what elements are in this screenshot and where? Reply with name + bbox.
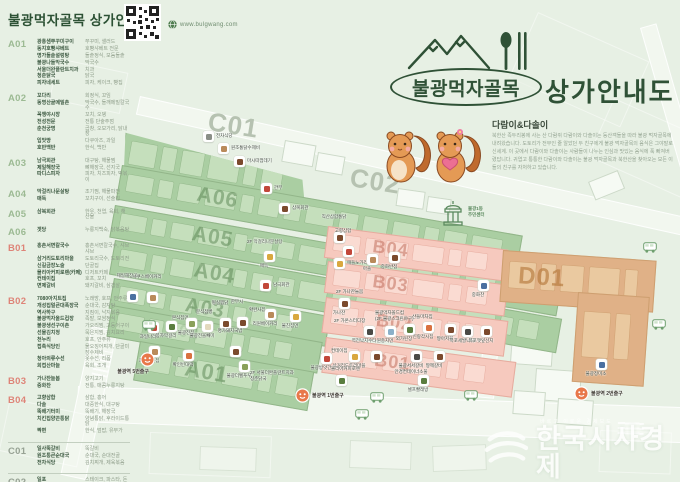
- building: [624, 270, 638, 297]
- community-center-label: 주민센터: [468, 212, 485, 218]
- store-name: 매득: [37, 197, 83, 203]
- store-glyph: [150, 295, 156, 301]
- store-entry: 원조통큰순대국순대국, 순대전골: [37, 454, 130, 460]
- store-entry: 접촉식당인물오징어찌개, 단골미장수제비: [37, 345, 130, 356]
- poi-label: 직산삼합통닭: [322, 214, 347, 220]
- store-entry: 면제갈비돼지갈비, 삼겹살: [37, 284, 130, 290]
- store-description: 막국수, 들깨메밀칼국수: [85, 101, 130, 112]
- building: [128, 141, 158, 168]
- section-entries: 가나잔늘봄양지고기중화찬전통, 매콤누룽지탕: [37, 377, 130, 389]
- poi-label: 불광정미소: [586, 371, 607, 377]
- store-name: 회접산마늘: [37, 364, 83, 370]
- directory-section-C02: C02일포스테이크, 파스타, 돈가스: [8, 473, 130, 482]
- section-entries: 겟당누룽지백숙, 닭볶음탕: [37, 228, 130, 238]
- store-entry: 고향삼합삼합, 홍어: [37, 396, 130, 402]
- store-entry: 삼거리도토리마을도토리국수, 도토리전: [37, 257, 130, 263]
- store-description: 막국수: [85, 61, 130, 67]
- store-name: 원조통큰순대국: [37, 454, 83, 460]
- building: [199, 446, 257, 472]
- store-icon: [418, 375, 429, 386]
- building: [179, 150, 205, 176]
- store-name: 홍촌서면칼국수: [37, 244, 83, 255]
- store-name: 뚝배기터미: [37, 410, 83, 416]
- zone-label-A05: A05: [190, 223, 235, 251]
- poi-label: 매득: [260, 263, 268, 269]
- poi-label: 마시따껍데기: [247, 158, 272, 164]
- store-entry: 일사뚝갈비뚝갈비: [37, 447, 130, 453]
- building: [516, 319, 539, 339]
- store-name: 가나잔늘봄: [37, 377, 83, 383]
- store-name: 호반백반: [37, 146, 83, 152]
- store-icon: [462, 326, 473, 337]
- store-glyph: [130, 294, 136, 300]
- store-glyph: [407, 327, 413, 333]
- store-glyph: [342, 301, 348, 307]
- poi-label: 뭥실찜닭: [212, 300, 229, 306]
- store-entry: 입맛땅다쿠아즈, 과일: [37, 139, 130, 145]
- poi-label: 2F 막걸리나문살탕: [247, 239, 282, 245]
- directory-section-A06: A06겟당누룽지백숙, 닭볶음탕: [8, 228, 130, 238]
- store-entry: 중화찬전통, 매콤누룽지탕: [37, 384, 130, 390]
- section-id: A01: [8, 40, 33, 87]
- store-description: 전통, 매콤누룽지탕: [85, 384, 130, 390]
- poi-label: 몰리아커피로렌: [331, 366, 360, 372]
- poi-label: 산들마차집: [412, 314, 433, 320]
- directory-section-B01: B01홍촌서면칼국수홍촌서면칼국수, 샤브샤브삼거리도토리마을도토리국수, 도토…: [8, 244, 130, 289]
- store-name: 겟당: [37, 228, 83, 234]
- section-entries: 광흥샘쭈꾸미구이쭈꾸미, 샐러드동지호빵샤베트호빵샤베트 전문명가돌솥설렁탕돌솥…: [37, 40, 130, 87]
- subway-exit-icon: [295, 388, 310, 403]
- store-glyph: [223, 321, 229, 327]
- store-entry: 매득꼬치구이, 선술집: [37, 197, 130, 203]
- bus-icon: [652, 317, 666, 335]
- store-name: 동명산골메밀촌: [37, 101, 83, 112]
- store-entry: 동명산골메밀촌막국수, 들깨메밀칼국수: [37, 101, 130, 112]
- poi-label: 불광역 1번출구: [312, 392, 344, 399]
- store-name: 삼복회관: [37, 210, 83, 221]
- store-glyph: [484, 329, 490, 335]
- section-entries: 일포스테이크, 파스타, 돈가스: [37, 478, 130, 482]
- poi-label: 컨테이집: [331, 348, 348, 354]
- globe-icon: [168, 16, 177, 34]
- subway-exit: 불광역 2번출구: [574, 386, 589, 406]
- store-icon: [321, 353, 332, 364]
- zone-D01: [572, 292, 650, 387]
- subway-exit: 불광역 5번출구: [140, 352, 155, 372]
- poi-label: 2F 가나잔늘봄: [336, 289, 363, 295]
- store-description: 꼬치, 오뎅: [85, 113, 130, 119]
- store-icon: [234, 156, 245, 167]
- store-icon: [445, 324, 456, 335]
- building: [412, 279, 444, 298]
- store-glyph: [205, 324, 211, 330]
- building: [233, 234, 248, 252]
- section-entries: 삼복회관한우, 천엽, 육회, 해산물: [37, 210, 130, 221]
- store-name: 일사뚝갈비: [37, 447, 83, 453]
- store-icon: [434, 351, 445, 362]
- poi-label: 아솔: [363, 266, 371, 272]
- store-icon: [218, 143, 229, 154]
- store-description: 전통 단술주점: [85, 120, 130, 126]
- poi-label: 중화찬: [472, 292, 484, 298]
- building: [150, 219, 167, 237]
- store-description: 호빵샤베트 전문: [85, 47, 130, 53]
- store-icon: [596, 359, 607, 370]
- poi-label: 불광더벨푸우: [227, 373, 252, 379]
- store-glyph: [367, 329, 373, 335]
- building: [432, 444, 487, 472]
- store-glyph: [599, 362, 605, 368]
- poi-label: 가나잔: [333, 310, 345, 316]
- store-entry: 겟당누룽지백숙, 닭볶음탕: [37, 228, 130, 234]
- building: [240, 194, 255, 213]
- poi-label: 사쿠스베이커리: [133, 274, 162, 280]
- store-entry: 명가돌솥설렁탕돌솥정식, 모둠돌솥: [37, 54, 130, 60]
- section-entries: 막걸리나문살탕조기찜, 해물파전매득꼬치구이, 선술집: [37, 190, 130, 202]
- poster-title: 불광먹자골목 상가안내: [8, 9, 141, 29]
- building: [333, 269, 361, 288]
- section-id: C01: [8, 447, 33, 466]
- store-name: 남극회관: [37, 159, 83, 165]
- section-id: B03: [8, 377, 33, 389]
- store-description: 돌솥정식, 모둠돌솥: [85, 54, 130, 60]
- poi-label: 삼복회관: [292, 205, 309, 211]
- poi-label: 리원베이커리: [253, 321, 278, 327]
- store-icon: [343, 246, 354, 257]
- store-glyph: [206, 134, 212, 140]
- store-glyph: [392, 255, 398, 261]
- building: [588, 170, 625, 201]
- store-name: 면제갈비: [37, 284, 83, 290]
- store-entry: 치킨집양끈통닭양념통닭, 후라이드통닭: [37, 417, 130, 428]
- building: [512, 390, 546, 416]
- store-description: 곱창, 오모가리, 닭내장: [85, 127, 130, 138]
- store-icon: [290, 311, 301, 322]
- watermark: 바르고 이로운 경제보도 한국시사경제: [482, 418, 680, 482]
- section-id: B01: [8, 244, 33, 289]
- store-name: 피자네세트: [37, 81, 83, 87]
- store-glyph: [388, 329, 394, 335]
- store-description: 한우, 천엽, 육회, 해산물: [85, 210, 130, 221]
- store-icon: [203, 131, 214, 142]
- store-name: 천누리: [37, 338, 83, 344]
- squirrel-mascots-icon: [384, 126, 484, 193]
- store-entry: 일포스테이크, 파스타, 돈가스: [37, 478, 130, 482]
- store-name: 선물김치정: [37, 331, 83, 337]
- store-name: 고향삼합: [37, 396, 83, 402]
- store-entry: 회접산마늘육회, 조개: [37, 364, 130, 370]
- section-id: B04: [8, 396, 33, 435]
- store-name: 신길금장노술: [37, 264, 83, 270]
- poi-label: 외가된장: [396, 336, 413, 342]
- building: [448, 249, 462, 266]
- store-glyph: [374, 354, 380, 360]
- building: [258, 197, 281, 217]
- store-description: 단골집: [85, 264, 130, 270]
- building: [274, 341, 292, 359]
- poi-label: 분식점빵: [196, 309, 213, 315]
- store-description: 쭈꾸미, 샐러드: [85, 40, 130, 46]
- store-glyph: [339, 378, 345, 384]
- store-name: 입맛땅: [37, 139, 83, 145]
- store-description: 삼합, 홍어: [85, 396, 130, 402]
- store-glyph: [337, 261, 343, 267]
- bus-icon: [464, 388, 478, 406]
- store-description: 누룽지백숙, 닭볶음탕: [85, 228, 130, 234]
- store-entry: 다솔대중한식, 대구탕: [37, 403, 130, 409]
- poi-label: 목포깻잎선지: [469, 338, 494, 344]
- store-entry: 천누리호프, 안주류: [37, 338, 130, 344]
- subway-exit: 불광역 1번출구: [295, 388, 310, 408]
- section-entries: 홍촌서면칼국수홍촌서면칼국수, 샤브샤브삼거리도토리마을도토리국수, 도토리전신…: [37, 244, 130, 289]
- section-id: B02: [8, 297, 33, 370]
- store-entry: 춘천궁명곱창, 오모가리, 닭내장: [37, 127, 130, 138]
- store-glyph: [233, 349, 239, 355]
- directory-section-A03: A03남극회관대구탕, 해물찜제일해장국뼈해장국, 선지국따디스피자피자, 치즈…: [8, 159, 130, 184]
- store-icon: [237, 317, 248, 328]
- store-entry: 뚝배기터미뚝배기, 해장국: [37, 410, 130, 416]
- mascot-description: 북한산 족두리봉에 사는 산 다람쥐 다람이와 다솔이는 등산객들을 따라 불광…: [492, 132, 674, 172]
- store-icon: [230, 346, 241, 357]
- store-entry: 선물김치정묵은지찜, 김치요리: [37, 331, 130, 337]
- store-icon: [261, 183, 272, 194]
- store-description: 다쿠아즈, 과일: [85, 139, 130, 145]
- store-description: 노래방, 호프, 안주류: [85, 297, 130, 303]
- poi-label: 불광서서갈비안경컨테이너소울: [394, 363, 427, 374]
- building: [446, 361, 460, 380]
- store-glyph: [346, 249, 352, 255]
- directory-section-B03: B03가나잔늘봄양지고기중화찬전통, 매콤누룽지탕: [8, 377, 130, 389]
- store-glyph: [370, 257, 376, 263]
- section-id: A06: [8, 228, 33, 238]
- store-icon: [389, 252, 400, 263]
- store-icon: [186, 318, 197, 329]
- store-name: 치킨집양끈통닭: [37, 417, 83, 428]
- store-description: 대구탕, 해물찜: [85, 159, 130, 165]
- store-description: 호프, 안주류: [85, 338, 130, 344]
- store-description: 순대국, 순대전골: [85, 454, 130, 460]
- store-entry: 가나잔늘봄양지고기: [37, 377, 130, 383]
- poi-label: 깐부: [274, 185, 282, 191]
- store-description: 육회, 조개: [85, 364, 130, 370]
- store-description: 뚝배기, 해장국: [85, 410, 130, 416]
- store-glyph: [421, 378, 427, 384]
- store-glyph: [282, 206, 288, 212]
- store-description: 홍촌서면칼국수, 샤브샤브: [85, 244, 130, 255]
- building: [613, 313, 630, 360]
- section-id: A04: [8, 190, 33, 202]
- store-glyph: [465, 329, 471, 335]
- store-description: 양지고기: [85, 377, 130, 383]
- store-name: 춘천궁명: [37, 127, 83, 138]
- store-entry: 전성전문전통 단술주점: [37, 120, 130, 126]
- store-glyph: [481, 283, 487, 289]
- store-description: 묵은지찜, 김치요리: [85, 331, 130, 337]
- store-entry: 호반백반한식, 백반: [37, 146, 130, 152]
- website-link[interactable]: www.bulgwang.com: [180, 22, 238, 28]
- store-name: 짝편: [37, 429, 83, 435]
- poi-label: 불광전올빼미: [190, 333, 215, 339]
- store-entry: 삼복회관한우, 천엽, 육회, 해산물: [37, 210, 130, 221]
- poi-label: 2F 가온스터디장: [334, 318, 365, 324]
- store-glyph: [263, 283, 269, 289]
- zone-label-A04: A04: [192, 259, 237, 287]
- store-description: 꼬치구이, 선술집: [85, 197, 130, 203]
- store-name: 광흥샘쭈꾸미구이: [37, 40, 83, 46]
- store-icon: [385, 326, 396, 337]
- directory-section-B04: B04고향삼합삼합, 홍어다솔대중한식, 대구탕뚝배기터미뚝배기, 해장국치킨집…: [8, 396, 130, 435]
- building: [281, 140, 316, 167]
- store-icon: [260, 280, 271, 291]
- store-glyph: [267, 254, 273, 260]
- building: [581, 311, 610, 358]
- watermark-name: 한국시사경제: [536, 425, 680, 482]
- poi-label: 짱께갈비: [426, 363, 443, 369]
- section-id: A05: [8, 210, 33, 221]
- bus-icon: [370, 390, 384, 408]
- building: [170, 258, 195, 279]
- store-name: 전성전문: [37, 120, 83, 126]
- store-icon: [239, 361, 250, 372]
- store-glyph: [437, 354, 443, 360]
- poi-label: 고향삼합: [335, 228, 352, 234]
- store-name: 7080아지트집: [37, 297, 83, 303]
- section-id: A02: [8, 94, 33, 152]
- building: [463, 363, 485, 383]
- store-icon: [423, 322, 434, 333]
- store-icon: [339, 298, 350, 309]
- store-entry: 개성집얼큰대폭장국순대국, 감자탕: [37, 304, 130, 310]
- store-glyph: [426, 325, 432, 331]
- store-icon: [202, 321, 213, 332]
- store-glyph: [242, 364, 248, 370]
- store-name: 불광나들막국수: [37, 61, 83, 67]
- directory-section-B02: B027080아지트집노래방, 호프, 안주류개성집얼큰대폭장국순대국, 감자탕…: [8, 297, 130, 370]
- directory-section-A05: A05삼복회관한우, 천엽, 육회, 해산물: [8, 210, 130, 221]
- store-entry: 불광나들막국수막국수: [37, 61, 130, 67]
- store-name: 중화찬: [37, 384, 83, 390]
- building: [157, 179, 174, 198]
- store-glyph: [324, 356, 330, 362]
- store-icon: [349, 351, 360, 362]
- poi-label: 전차식당: [216, 133, 233, 139]
- poster: A06A05A04A03A02A01B04B03B02B01D01C01C02전…: [0, 0, 680, 482]
- store-name: 일포: [37, 478, 83, 482]
- store-description: 피자, 케이크, 빵집: [85, 81, 130, 87]
- store-entry: 짝편한식, 덮밥, 유부가: [37, 429, 130, 435]
- building: [588, 267, 620, 295]
- logo-wordmark-frame: 불광먹자골목: [390, 68, 542, 106]
- store-icon: [336, 375, 347, 386]
- bus-icon: [643, 240, 657, 258]
- directory-section-A01: A01광흥샘쭈꾸미구이쭈꾸미, 샐러드동지호빵샤베트호빵샤베트 전문명가돌솥설렁…: [8, 40, 130, 87]
- bus-icon: [355, 407, 369, 425]
- store-entry: 따디스피자피자, 치즈피자, 떡볶이: [37, 172, 130, 183]
- store-icon: [371, 351, 382, 362]
- poi-label: 뭔충지먼: [377, 338, 394, 344]
- subway-exit-icon: [574, 386, 589, 401]
- store-entry: 전차식당김치찌개, 제육볶음: [37, 461, 130, 467]
- store-icon: [478, 280, 489, 291]
- building: [248, 337, 270, 356]
- store-icon: [279, 203, 290, 214]
- poi-label: 불친집먼: [282, 323, 299, 329]
- store-icon: [264, 251, 275, 262]
- poi-label: 신랑각시집: [413, 334, 434, 340]
- store-entry: 홍촌서면칼국수홍촌서면칼국수, 샤브샤브: [37, 244, 130, 255]
- community-center: 불광1동 주민센터: [441, 200, 485, 231]
- store-entry: 동지호빵샤베트호빵샤베트 전문: [37, 47, 130, 53]
- store-icon: [166, 321, 177, 332]
- building: [466, 251, 488, 269]
- zone-label-A06: A06: [195, 184, 240, 212]
- store-glyph: [240, 320, 246, 326]
- store-description: 대중한식, 대구탕: [85, 403, 130, 409]
- store-glyph: [237, 159, 243, 165]
- poi-label: 남극회관: [273, 282, 290, 288]
- store-description: 피자, 치즈피자, 떡볶이: [85, 172, 130, 183]
- section-id: C02: [8, 478, 33, 482]
- store-icon: [411, 351, 422, 362]
- store-glyph: [337, 235, 343, 241]
- store-name: 전차식당: [37, 461, 83, 467]
- poi-label: 명가돼지국밥: [218, 328, 243, 334]
- store-icon: [265, 309, 276, 320]
- poi-label: 확완사집: [249, 307, 266, 313]
- store-description: 돼지갈비, 삼겹살: [85, 284, 130, 290]
- store-glyph: [189, 321, 195, 327]
- store-glyph: [293, 314, 299, 320]
- building: [150, 254, 167, 273]
- store-entry: 피자네세트피자, 케이크, 빵집: [37, 81, 130, 87]
- section-entries: 일사뚝갈비뚝갈비원조통큰순대국순대국, 순대전골전차식당김치찌개, 제육볶음: [37, 447, 130, 466]
- community-center-icon: [441, 200, 465, 231]
- store-description: 한식, 백반: [85, 146, 130, 152]
- section-entries: 고향삼합삼합, 홍어다솔대중한식, 대구탕뚝배기터미뚝배기, 해장국치킨집양끈통…: [37, 396, 130, 435]
- section-entries: 꼬다리회정식, 꼬임동명산골메밀촌막국수, 들깨메밀칼국수꼭챙야시장꼬치, 오뎅…: [37, 94, 130, 152]
- section-entries: 7080아지트집노래방, 호프, 안주류개성집얼큰대폭장국순대국, 감자탕역사하…: [37, 297, 130, 370]
- poi-label: 역전낙지수타: [352, 338, 377, 344]
- poi-label: 중화반점: [381, 264, 398, 270]
- store-description: 스테이크, 파스타, 돈가스: [85, 478, 130, 482]
- store-entry: 광흥샘쭈꾸미구이쭈꾸미, 샐러드: [37, 40, 130, 46]
- mascot-heading: 다람이&다솔이: [492, 118, 548, 131]
- store-directory: A01광흥샘쭈꾸미구이쭈꾸미, 샐러드동지호빵샤베트호빵샤베트 전문명가돌솥설렁…: [8, 40, 130, 482]
- store-description: 회정식, 꼬임: [85, 94, 130, 100]
- store-name: 꼭챙야시장: [37, 113, 83, 119]
- store-icon: [364, 326, 375, 337]
- store-icon: [220, 318, 231, 329]
- store-description: 뚝갈비: [85, 447, 130, 453]
- poi-label: 2F 서울더완플란트치과청춘닭국: [250, 370, 294, 381]
- news-logo-icon: [482, 424, 528, 475]
- store-name: 삼거리도토리마을: [37, 257, 83, 263]
- poi-label: 셀프빨래방: [408, 387, 429, 393]
- poi-label: 봉자막걸리: [156, 333, 177, 339]
- subway-exit-icon: [140, 352, 155, 367]
- store-glyph: [352, 354, 358, 360]
- section-entries: 남극회관대구탕, 해물찜제일해장국뼈해장국, 선지국따디스피자피자, 치즈피자,…: [37, 159, 130, 184]
- directory-section-C01: C01일사뚝갈비뚝갈비원조통큰순대국순대국, 순대전골전차식당김치찌개, 제육볶…: [8, 442, 130, 466]
- store-name: 다솔: [37, 403, 83, 409]
- store-name: 꼬다리: [37, 94, 83, 100]
- store-icon: [334, 258, 345, 269]
- zone-label-B03: B03: [372, 272, 410, 295]
- store-icon: [367, 254, 378, 265]
- store-icon: [183, 350, 194, 361]
- store-glyph: [268, 312, 274, 318]
- building: [448, 284, 462, 301]
